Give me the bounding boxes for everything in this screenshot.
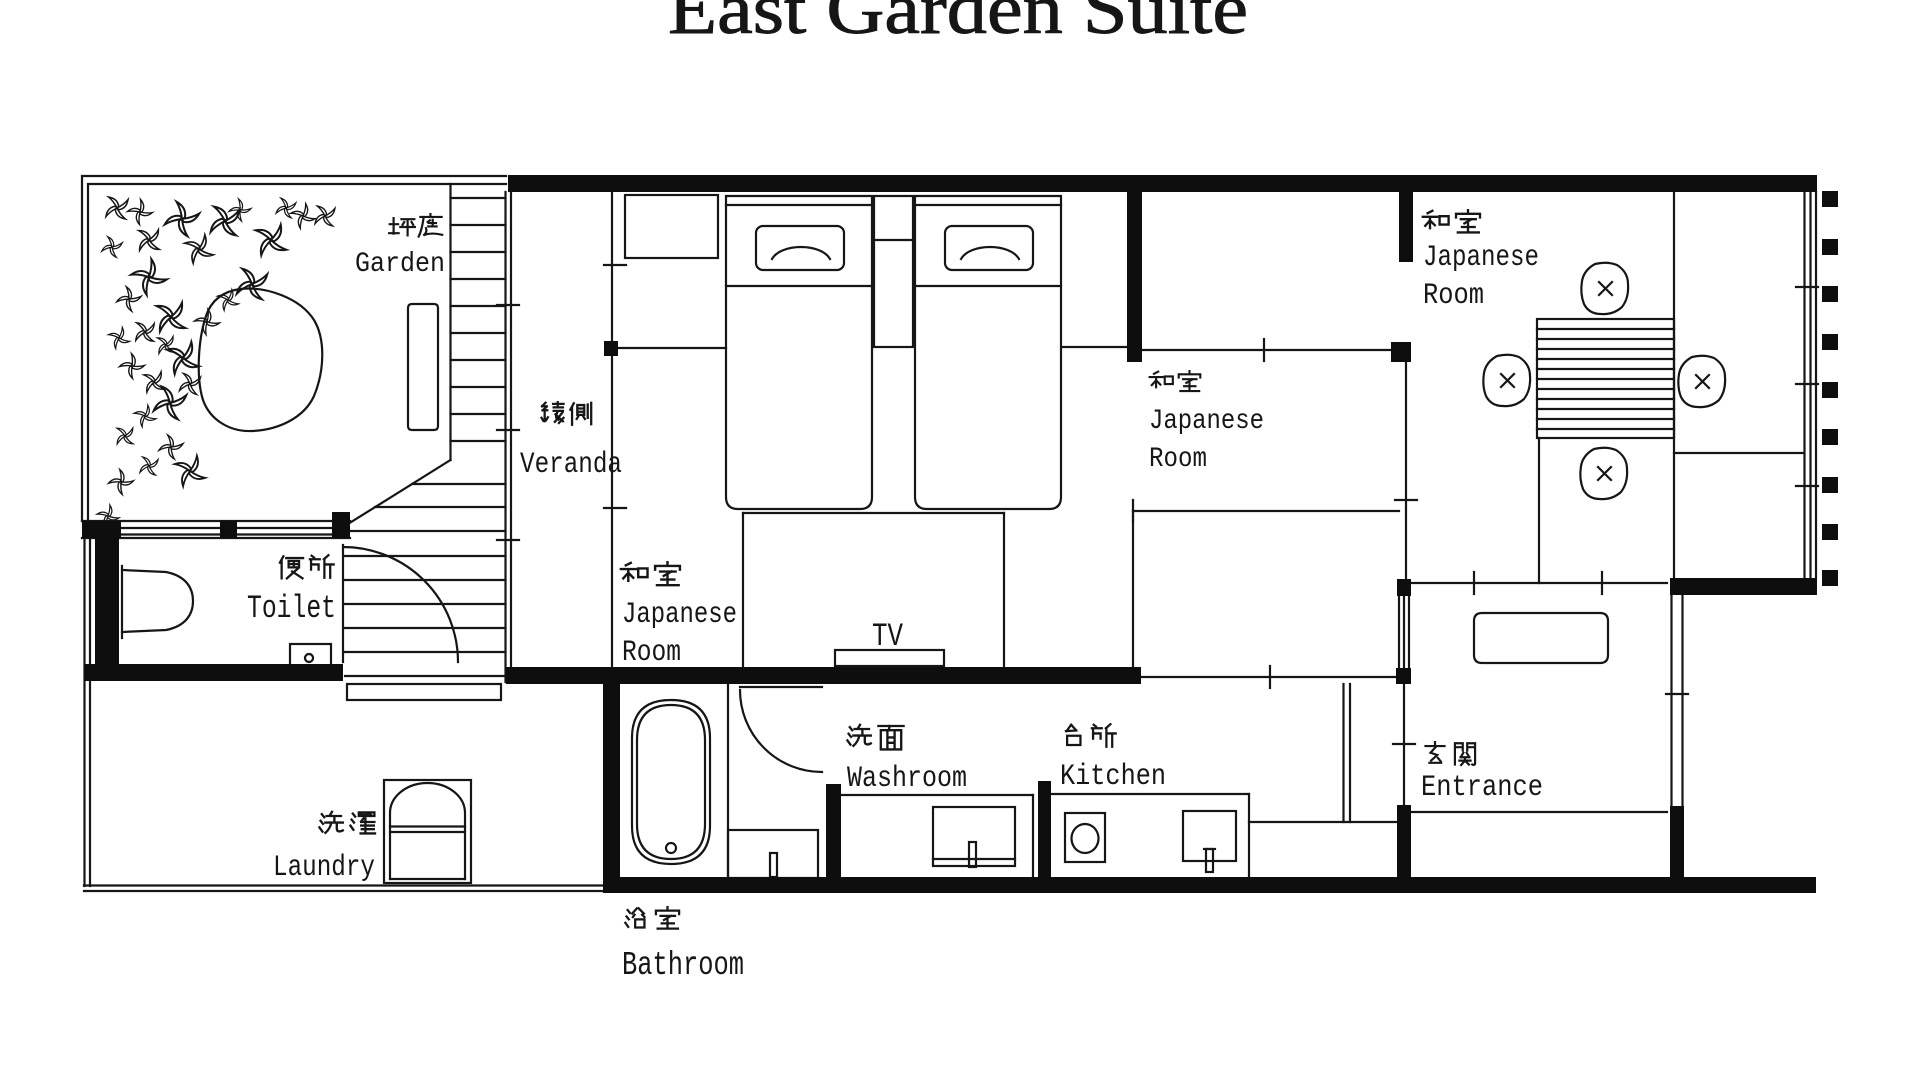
svg-text:Japanese: Japanese <box>622 598 737 632</box>
svg-text:Room: Room <box>1149 444 1207 475</box>
svg-text:TV: TV <box>872 618 904 655</box>
svg-text:Toilet: Toilet <box>247 590 336 627</box>
svg-text:East Garden Suite: East Garden Suite <box>668 0 1248 49</box>
svg-text:Washroom: Washroom <box>847 762 967 796</box>
svg-text:Garden: Garden <box>355 249 445 280</box>
svg-text:Bathroom: Bathroom <box>622 947 744 984</box>
svg-text:Japanese: Japanese <box>1423 241 1539 275</box>
svg-text:Room: Room <box>1423 279 1484 313</box>
svg-text:Laundry: Laundry <box>273 851 375 885</box>
svg-text:Veranda: Veranda <box>520 448 622 482</box>
svg-text:Room: Room <box>622 636 681 670</box>
svg-text:Japanese: Japanese <box>1149 406 1264 437</box>
svg-text:Entrance: Entrance <box>1421 771 1543 805</box>
svg-text:Kitchen: Kitchen <box>1060 760 1166 794</box>
